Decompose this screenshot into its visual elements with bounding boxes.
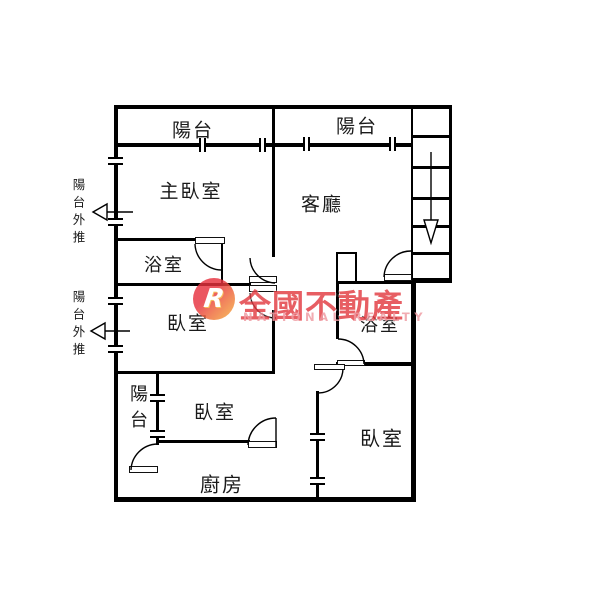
room-label-balcony-bottom: 陽台 [124,384,150,436]
window [108,345,123,353]
window [108,218,123,226]
watermark-logo-icon: R [193,278,235,320]
room-label-bedroom-mid-bottom: 臥室 [194,398,236,425]
room-label-bedroom-bottom-right: 臥室 [360,423,404,452]
wall-bottom [114,497,416,502]
pushout-left-arrow-icon-1 [93,204,107,220]
annotation-balcony-pushout-2: 陽台外推 [69,290,88,360]
wall-center-divider [272,105,275,257]
window [310,433,325,441]
room-label-balcony-top-left: 陽台 [172,116,214,143]
stair-tread [413,135,450,138]
stair-tread [413,197,450,200]
door-slab-kitchen [129,466,158,473]
door-arc-bedroom-right [318,369,343,393]
wall-masterbath-top [114,238,196,241]
room-label-living-room: 客廳 [301,190,343,217]
window [108,297,123,305]
stair-tread [413,225,450,228]
door-slab-masterbath [195,237,225,244]
wall-stair-bottom [411,278,452,283]
wall-kitchen-top [156,440,250,443]
annotation-balcony-pushout-1: 陽台外推 [69,178,88,248]
window [310,477,325,485]
stair-tread [413,166,450,169]
door-arc-masterbath [195,244,221,270]
window [303,137,310,151]
door-slab-bedroom-midbottom [248,441,277,448]
wall-top [114,105,452,109]
watermark-subtitle: NATIONAL REALTY [243,310,427,324]
door-slab-entry [384,274,412,281]
stair-tread [413,252,450,255]
window [389,137,396,151]
floor-plan: 陽台 陽台 主臥室 客廳 浴室 臥室 浴室 陽台 臥室 臥室 廚房 陽台外推 陽… [0,0,600,600]
stair-down-arrow-icon [424,220,438,243]
window [150,394,165,402]
door-slab-bedroom-right [314,364,345,370]
watermark-logo-letter: R [202,284,226,314]
room-label-master-bedroom: 主臥室 [159,177,222,204]
room-label-bathroom-left: 浴室 [144,251,184,277]
room-label-kitchen: 廚房 [200,469,244,498]
wall-bedroom-midleft-bottom [114,371,275,374]
pushout-left-arrow-icon-2 [91,323,105,339]
room-label-balcony-top-right: 陽台 [336,112,378,139]
wall-stair-right [449,105,452,283]
window [108,157,123,165]
duct-shaft [336,252,357,283]
window [259,138,266,152]
window [150,430,165,438]
